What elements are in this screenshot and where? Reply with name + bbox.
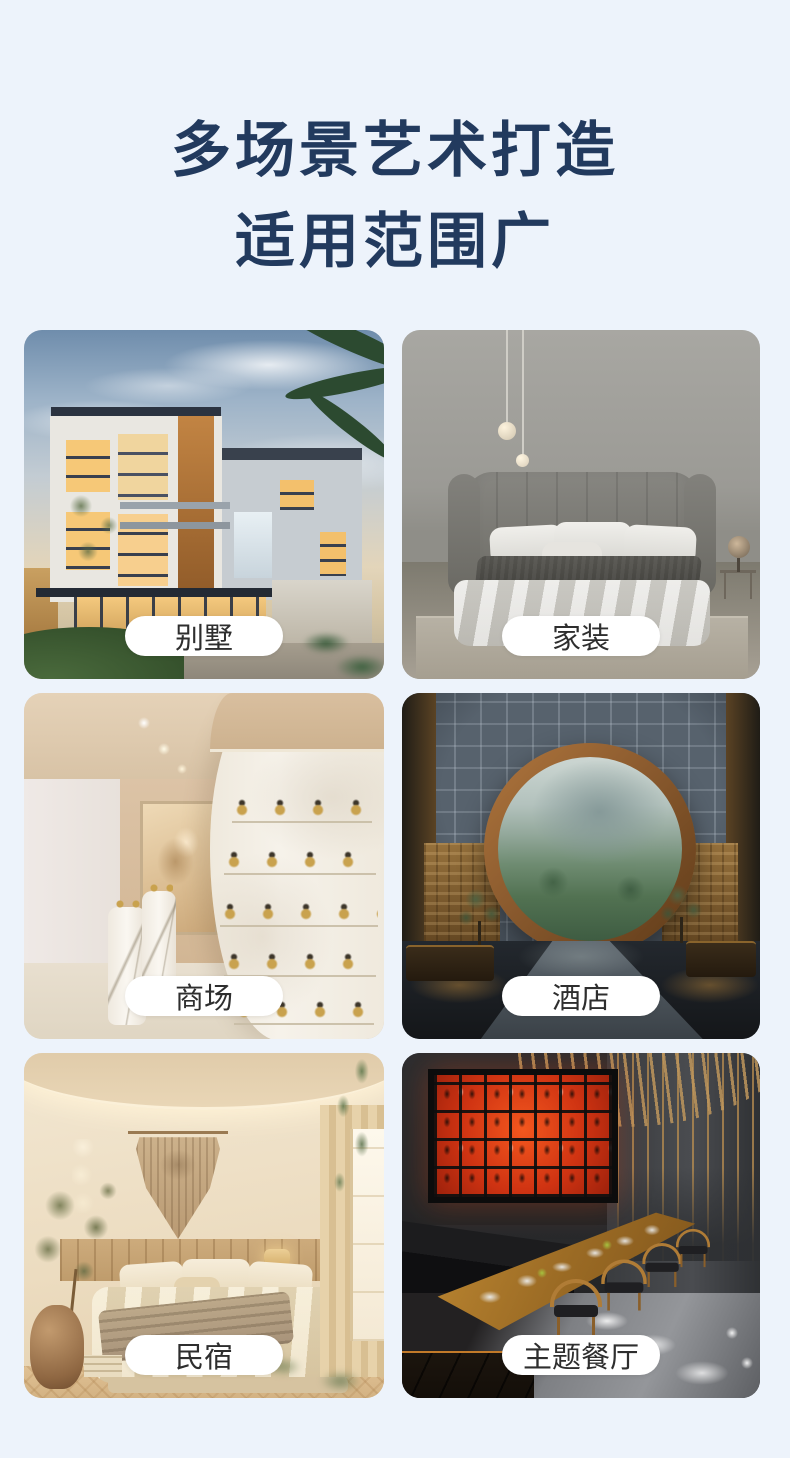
- book-stack: [84, 1355, 122, 1377]
- section-header: 多场景艺术打造 适用范围广: [0, 0, 790, 288]
- lobby-tree: [450, 877, 514, 951]
- scene-card-homestay: 民宿: [24, 1053, 384, 1398]
- scene-label: 家装: [552, 615, 610, 657]
- scene-label: 民宿: [175, 1334, 233, 1376]
- mall-curved-wall-cap: [210, 693, 384, 752]
- scene-card-grid: 别墅 家装: [24, 330, 760, 1398]
- wooden-chair: [601, 1259, 647, 1310]
- product-shelf-row: [220, 901, 378, 927]
- scene-card-villa: 别墅: [24, 330, 384, 679]
- macrame-wall-hanging: [136, 1133, 220, 1239]
- side-table: [720, 570, 756, 599]
- pendant-light-icon: [522, 330, 524, 458]
- scene-card-hotel: 酒店: [402, 693, 760, 1039]
- red-backlit-display-wall: [428, 1069, 618, 1203]
- scene-label-pill: 酒店: [502, 976, 660, 1016]
- product-shelf-row: [224, 951, 376, 977]
- scene-label-pill: 别墅: [125, 616, 283, 656]
- lobby-furniture: [406, 945, 494, 981]
- lobby-furniture: [686, 941, 756, 977]
- scene-label: 别墅: [175, 615, 233, 657]
- hanging-branch: [310, 1053, 384, 1205]
- scene-card-mall: 商场: [24, 693, 384, 1039]
- product-shelf-row: [232, 797, 372, 823]
- mall-left-wall: [24, 779, 120, 965]
- villa-tree: [60, 480, 130, 610]
- product-shelf-row: [224, 849, 376, 875]
- page-title-line-2: 适用范围广: [0, 197, 790, 288]
- table-lamp-icon: [728, 536, 750, 558]
- wooden-chair: [676, 1229, 710, 1267]
- villa-foreground-leaves: [278, 611, 384, 679]
- villa-balcony: [120, 502, 230, 509]
- wooden-chair: [550, 1279, 602, 1337]
- scene-label-pill: 商场: [125, 976, 283, 1016]
- villa-rear-house: [222, 448, 362, 600]
- scene-label: 商场: [175, 975, 233, 1017]
- page-title-line-1: 多场景艺术打造: [0, 106, 790, 197]
- scene-card-home-decor: 家装: [402, 330, 760, 679]
- olive-tree-plant: [24, 1169, 138, 1315]
- clay-vase: [30, 1305, 84, 1389]
- scene-label-pill: 民宿: [125, 1335, 283, 1375]
- scene-label-pill: 主题餐厅: [502, 1335, 660, 1375]
- macrame-rod: [128, 1131, 228, 1134]
- scene-card-theme-restaurant: 主题餐厅: [402, 1053, 760, 1398]
- pendant-light-icon: [506, 330, 508, 426]
- lobby-tree: [652, 873, 716, 947]
- scene-label: 酒店: [552, 975, 610, 1017]
- scene-label: 主题餐厅: [523, 1334, 639, 1376]
- scene-label-pill: 家装: [502, 616, 660, 656]
